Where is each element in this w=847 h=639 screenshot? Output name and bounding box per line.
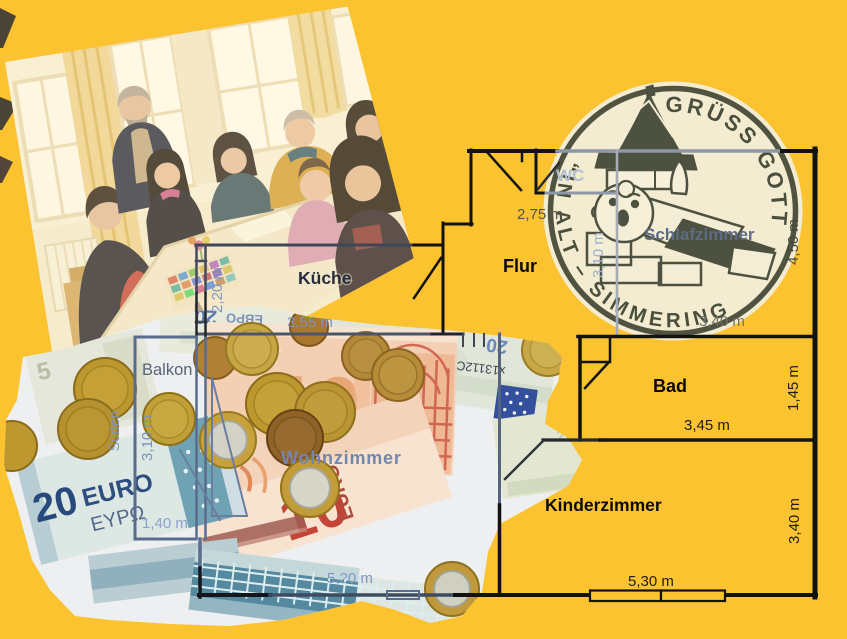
svg-text:5,30 m: 5,30 m [628, 573, 674, 590]
svg-text:2,75 m: 2,75 m [517, 206, 563, 223]
svg-text:3,40 m: 3,40 m [699, 313, 745, 330]
svg-text:3,10 m: 3,10 m [139, 415, 156, 461]
svg-text:Balkon: Balkon [142, 361, 192, 379]
svg-text:1,45 m: 1,45 m [785, 365, 802, 411]
svg-text:Schlafzimmer: Schlafzimmer [644, 225, 755, 244]
svg-text:4,50 m: 4,50 m [785, 219, 802, 265]
svg-text:Küche: Küche [298, 268, 352, 288]
svg-text:Kinderzimmer: Kinderzimmer [545, 495, 662, 515]
svg-text:3,45 m: 3,45 m [684, 417, 730, 434]
svg-text:Bad: Bad [653, 376, 687, 396]
svg-text:2,20 m: 2,20 m [209, 267, 226, 313]
svg-text:Wohnzimmer: Wohnzimmer [281, 448, 402, 468]
svg-text:Süden: Süden [106, 411, 122, 451]
svg-text:3,10 m: 3,10 m [590, 232, 607, 278]
svg-text:Flur: Flur [503, 256, 537, 276]
svg-text:5,20 m: 5,20 m [327, 570, 373, 587]
svg-text:3,55 m: 3,55 m [287, 314, 333, 331]
svg-text:3,40 m: 3,40 m [786, 498, 803, 544]
svg-text:WC: WC [556, 166, 584, 185]
svg-text:1,40 m: 1,40 m [142, 515, 188, 532]
